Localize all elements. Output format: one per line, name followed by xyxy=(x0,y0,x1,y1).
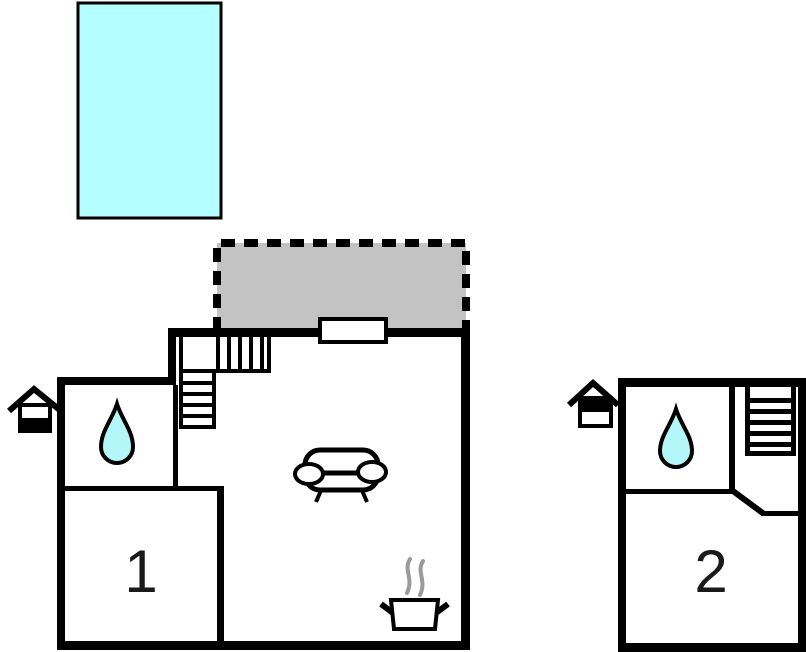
pot-body xyxy=(391,600,438,629)
water-drop-icon xyxy=(660,409,692,467)
stair-edge xyxy=(179,425,216,429)
room-label-2: 2 xyxy=(694,538,727,605)
wall xyxy=(761,511,798,516)
wall xyxy=(173,385,178,490)
stair-step xyxy=(745,398,796,403)
wall xyxy=(57,377,176,385)
entrance-icon xyxy=(569,383,618,426)
stair-edge xyxy=(267,337,271,373)
stairs-icon xyxy=(179,337,271,429)
wall xyxy=(618,378,626,652)
stair-step xyxy=(238,337,242,372)
floor-plan: 1 2 xyxy=(0,0,806,652)
room-label-1: 1 xyxy=(124,538,157,605)
wall xyxy=(57,377,65,650)
stairs-icon xyxy=(745,387,796,456)
stair-step xyxy=(179,414,216,418)
building-1: 1 xyxy=(57,319,470,650)
terrace-area xyxy=(217,243,466,329)
sofa-armrest xyxy=(358,462,386,482)
stair-step xyxy=(179,392,216,396)
wall xyxy=(57,486,224,491)
building-2: 2 xyxy=(618,378,806,652)
steam-line xyxy=(407,559,410,593)
wall xyxy=(217,486,224,650)
wall xyxy=(729,387,735,491)
wall xyxy=(626,489,735,494)
wall xyxy=(461,328,470,650)
wall xyxy=(618,378,806,387)
stair-step xyxy=(745,409,796,414)
entrance-icon xyxy=(9,389,61,431)
steam-line xyxy=(420,561,423,595)
floor-plan-canvas: 1 2 xyxy=(0,0,806,652)
wall xyxy=(168,328,176,385)
stair-edge xyxy=(212,369,216,429)
stair-step xyxy=(745,442,796,447)
stair-step xyxy=(216,337,220,372)
wall xyxy=(798,378,806,652)
wall-diagonal xyxy=(733,491,764,514)
stair-step xyxy=(745,420,796,425)
sofa-armrest xyxy=(295,464,323,484)
water-drop-icon xyxy=(101,404,133,463)
sofa-icon xyxy=(295,450,386,502)
wall xyxy=(618,643,806,652)
stair-edge xyxy=(745,451,796,456)
pool xyxy=(78,3,221,218)
stair-step xyxy=(179,403,216,407)
stair-step xyxy=(745,431,796,436)
cooking-pot-icon xyxy=(381,559,448,629)
stair-step xyxy=(249,337,253,372)
entrance-door xyxy=(20,418,50,431)
wall xyxy=(57,641,470,650)
stair-step xyxy=(260,337,264,372)
stair-step xyxy=(227,337,231,372)
stair-step xyxy=(179,381,216,385)
entrance-door xyxy=(580,398,611,412)
stair-edge xyxy=(179,369,271,373)
window xyxy=(320,319,386,342)
